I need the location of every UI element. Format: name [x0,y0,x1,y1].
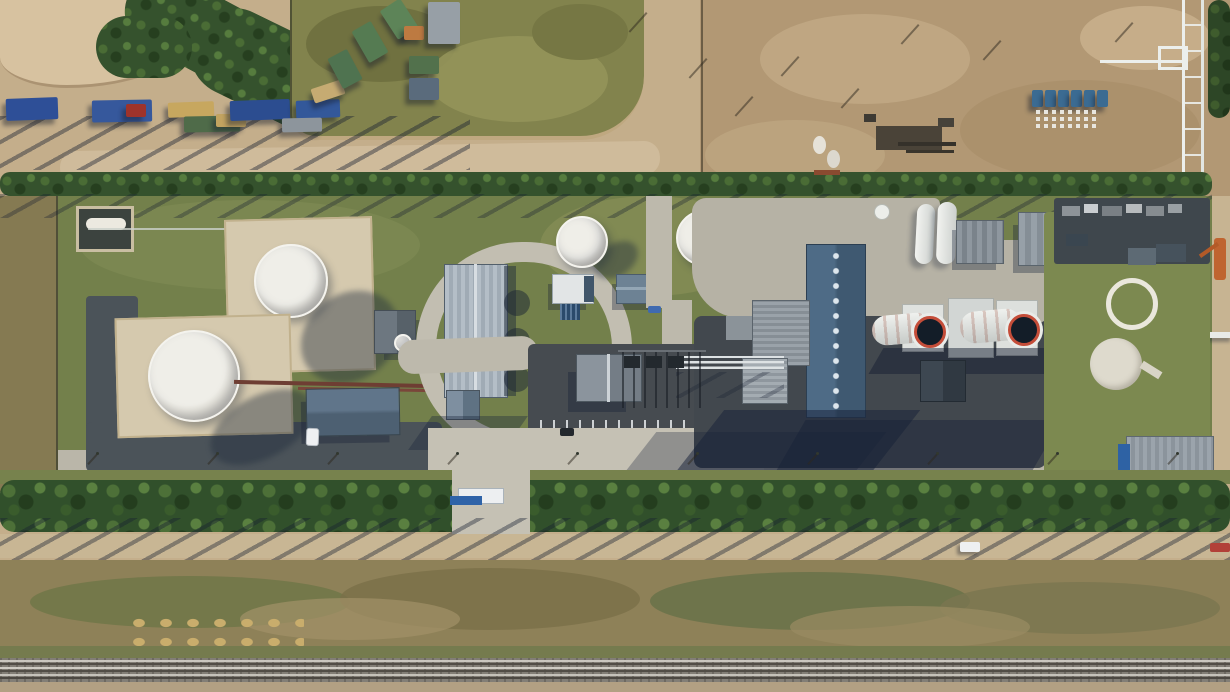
rail-line [0,677,1230,679]
aux-box [726,316,752,340]
road-vertical-upper [646,196,672,308]
tree-row-north [0,172,1212,196]
field-patch [532,4,628,60]
control-building-dark-bay [584,276,594,302]
storage-tank-small [556,216,608,268]
truck-trailer [409,56,439,74]
tree-cluster [96,16,192,78]
fence-left [56,196,58,480]
pad-equipment [1128,248,1156,265]
scrub-left-strip [0,196,58,492]
laydown-equipment [876,126,942,150]
white-rack-row [1036,124,1100,128]
blue-car [648,306,661,313]
transformer [624,356,640,368]
dark-building [920,360,966,402]
laydown-equipment [814,170,840,175]
pad-equipment [1146,206,1164,216]
hedge [1208,0,1230,118]
hay-row [126,614,304,648]
truck-trailer [230,99,291,121]
admin-ridge [607,354,610,402]
gate-sign-blue [450,496,482,505]
storage-tank-large [148,330,240,422]
page: { "scene": { "type": "aerial-photograph"… [0,0,1230,692]
white-ring-foundation [1106,278,1158,330]
pipe-run [88,228,228,230]
truck-trailer [126,104,146,117]
blue-container [1071,90,1082,107]
equipment-grid [560,304,580,320]
vertical-cylinder-tank [914,204,935,265]
laydown-equipment [898,142,956,146]
pad-equipment [1126,204,1142,213]
fence-line [701,0,703,194]
pad-equipment [1102,206,1122,216]
concrete-pad-circle [1090,338,1142,390]
pipe-rack-shadow [676,372,784,398]
white-rack-row [1036,110,1100,114]
exhaust-stack-mouth [914,316,946,348]
sphere-tank [874,204,890,220]
blue-container [1097,90,1108,107]
white-van [306,428,320,446]
white-rack-row [1036,117,1100,121]
bay-arch-shadow [504,290,530,316]
rail-line [0,660,1230,662]
rail-line [0,674,1230,676]
blue-container [1084,90,1095,107]
rail-line [0,663,1230,665]
exhaust-stack-mouth [1008,314,1040,346]
aux-building-triple-roof [956,220,1004,264]
aerial-photo [0,0,1230,692]
laydown-equipment [827,150,840,168]
truck-trailer [409,78,439,100]
switchyard-bus [618,350,706,352]
dark-car [560,428,574,436]
blue-container [1058,90,1069,107]
road-horizontal [397,336,538,375]
laydown-equipment [813,136,826,154]
truck-trailer [6,97,59,121]
white-car [960,542,980,552]
truck-trailer [282,118,322,133]
truck-trailer [404,26,424,40]
pad-equipment [1062,206,1080,216]
truck-trailer [428,2,460,44]
red-car [1210,543,1230,552]
rail-line [0,670,1230,672]
laydown-equipment [938,118,954,127]
dirt-south-edge [0,682,1230,692]
warehouse-ridge [474,264,477,398]
pipe-rack-center [676,356,784,369]
pad-equipment [1156,244,1186,262]
switchyard-pole [688,352,690,408]
pad-equipment [1066,234,1088,246]
pump-house-blue-roof [306,387,401,437]
transformer [668,356,684,368]
green-verge [0,646,1230,658]
blue-container [1032,90,1043,107]
switchyard-pole [699,352,701,408]
transformer [646,356,662,368]
vertical-cylinder-tank [936,202,957,265]
blue-container [1045,90,1056,107]
scrub-blotch [790,606,1030,648]
pad-equipment [1168,204,1182,213]
pad-equipment [1084,204,1098,213]
dirt-blotch [760,14,970,104]
pipe-loop [1158,46,1188,70]
turbine-hall-vents [830,248,842,414]
laydown-equipment [906,150,954,153]
rail-line [0,667,1230,669]
windbreak-shadow-streaks [0,518,1230,564]
storage-tank-large [254,244,328,318]
warehouse-southeast-roof [1126,436,1214,474]
laydown-equipment [864,114,876,122]
